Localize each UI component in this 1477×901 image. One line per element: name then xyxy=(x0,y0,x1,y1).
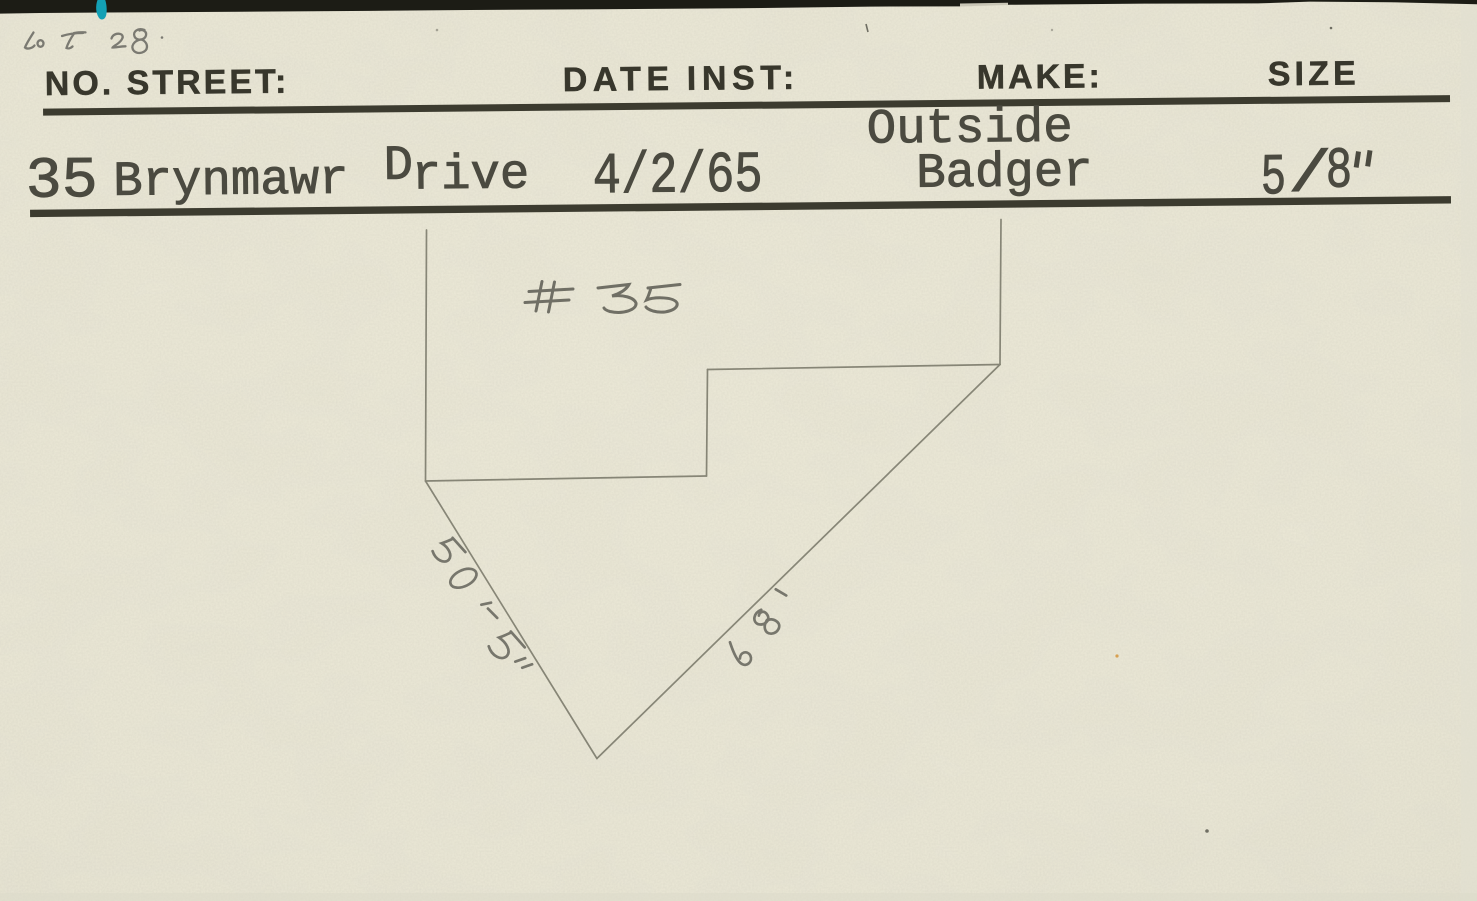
svg-text:D: D xyxy=(383,138,413,194)
svg-text:35: 35 xyxy=(25,149,98,215)
svg-text:4/2/65: 4/2/65 xyxy=(592,144,763,211)
svg-text:SIZE: SIZE xyxy=(1268,54,1360,93)
svg-text:INST:: INST: xyxy=(687,59,800,98)
svg-text:Brynmawr: Brynmawr xyxy=(113,152,349,210)
svg-text:rive: rive xyxy=(411,146,529,203)
svg-text:MAKE:: MAKE: xyxy=(977,57,1103,96)
svg-text:Badger: Badger xyxy=(916,144,1093,202)
svg-text:8: 8 xyxy=(1325,139,1352,205)
svg-text:DATE: DATE xyxy=(563,60,675,99)
svg-text:NO. STREET:: NO. STREET: xyxy=(45,63,290,103)
svg-text:5: 5 xyxy=(1260,146,1286,211)
